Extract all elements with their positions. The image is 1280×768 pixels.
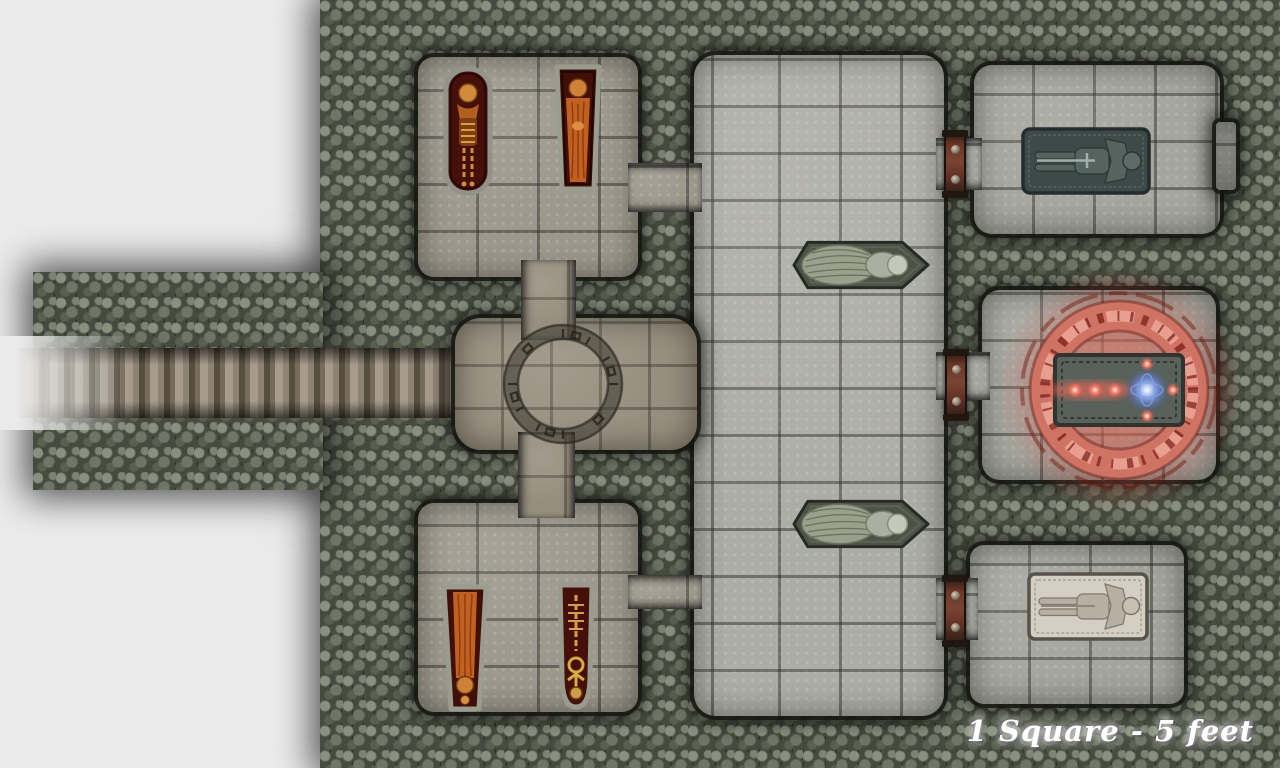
altar-slab bbox=[1049, 355, 1183, 425]
rune-circle-icon bbox=[501, 322, 625, 446]
sarcophagus-nw-shrouded bbox=[553, 64, 603, 192]
map-scale-label: 1 Square - 5 feet bbox=[967, 714, 1254, 748]
room-great-hall bbox=[694, 55, 944, 716]
winged-statue-icon bbox=[792, 233, 930, 297]
sarcophagus-nw-skeleton bbox=[443, 66, 493, 196]
red-orb-icon bbox=[1087, 382, 1103, 398]
blue-orb-icon bbox=[1125, 368, 1169, 412]
room-tomb-northeast-alcove bbox=[1216, 122, 1236, 190]
red-orb-icon bbox=[1067, 382, 1083, 398]
red-orb-icon bbox=[1107, 382, 1123, 398]
entrance-fade bbox=[0, 336, 130, 430]
red-orb-icon bbox=[1140, 409, 1154, 423]
sarcophagus-sw-skeleton bbox=[549, 581, 603, 715]
robed-effigy-icon bbox=[1027, 572, 1149, 641]
door-north-icon bbox=[944, 132, 966, 196]
summoning-circle bbox=[989, 260, 1249, 520]
knight-effigy-icon bbox=[1021, 127, 1151, 195]
dungeon-battle-map: 1 Square - 5 feet bbox=[0, 0, 1280, 768]
sarcophagus-sw-shrouded bbox=[441, 584, 489, 712]
rune-circle bbox=[501, 322, 625, 446]
sarcophagus-effigy-pale bbox=[1027, 572, 1149, 641]
statue-south bbox=[792, 492, 930, 556]
door-middle-icon bbox=[945, 351, 967, 419]
door-south-icon bbox=[944, 577, 966, 645]
passage-sw-to-hall bbox=[628, 575, 702, 609]
shrouded-body-icon bbox=[453, 592, 477, 705]
sarcophagus-effigy-dark bbox=[1021, 127, 1151, 195]
statue-north bbox=[792, 233, 930, 297]
winged-statue-icon bbox=[792, 492, 930, 556]
red-orb-icon bbox=[1166, 383, 1180, 397]
red-orb-icon bbox=[1140, 357, 1154, 371]
passage-nw-to-hall bbox=[628, 163, 702, 212]
